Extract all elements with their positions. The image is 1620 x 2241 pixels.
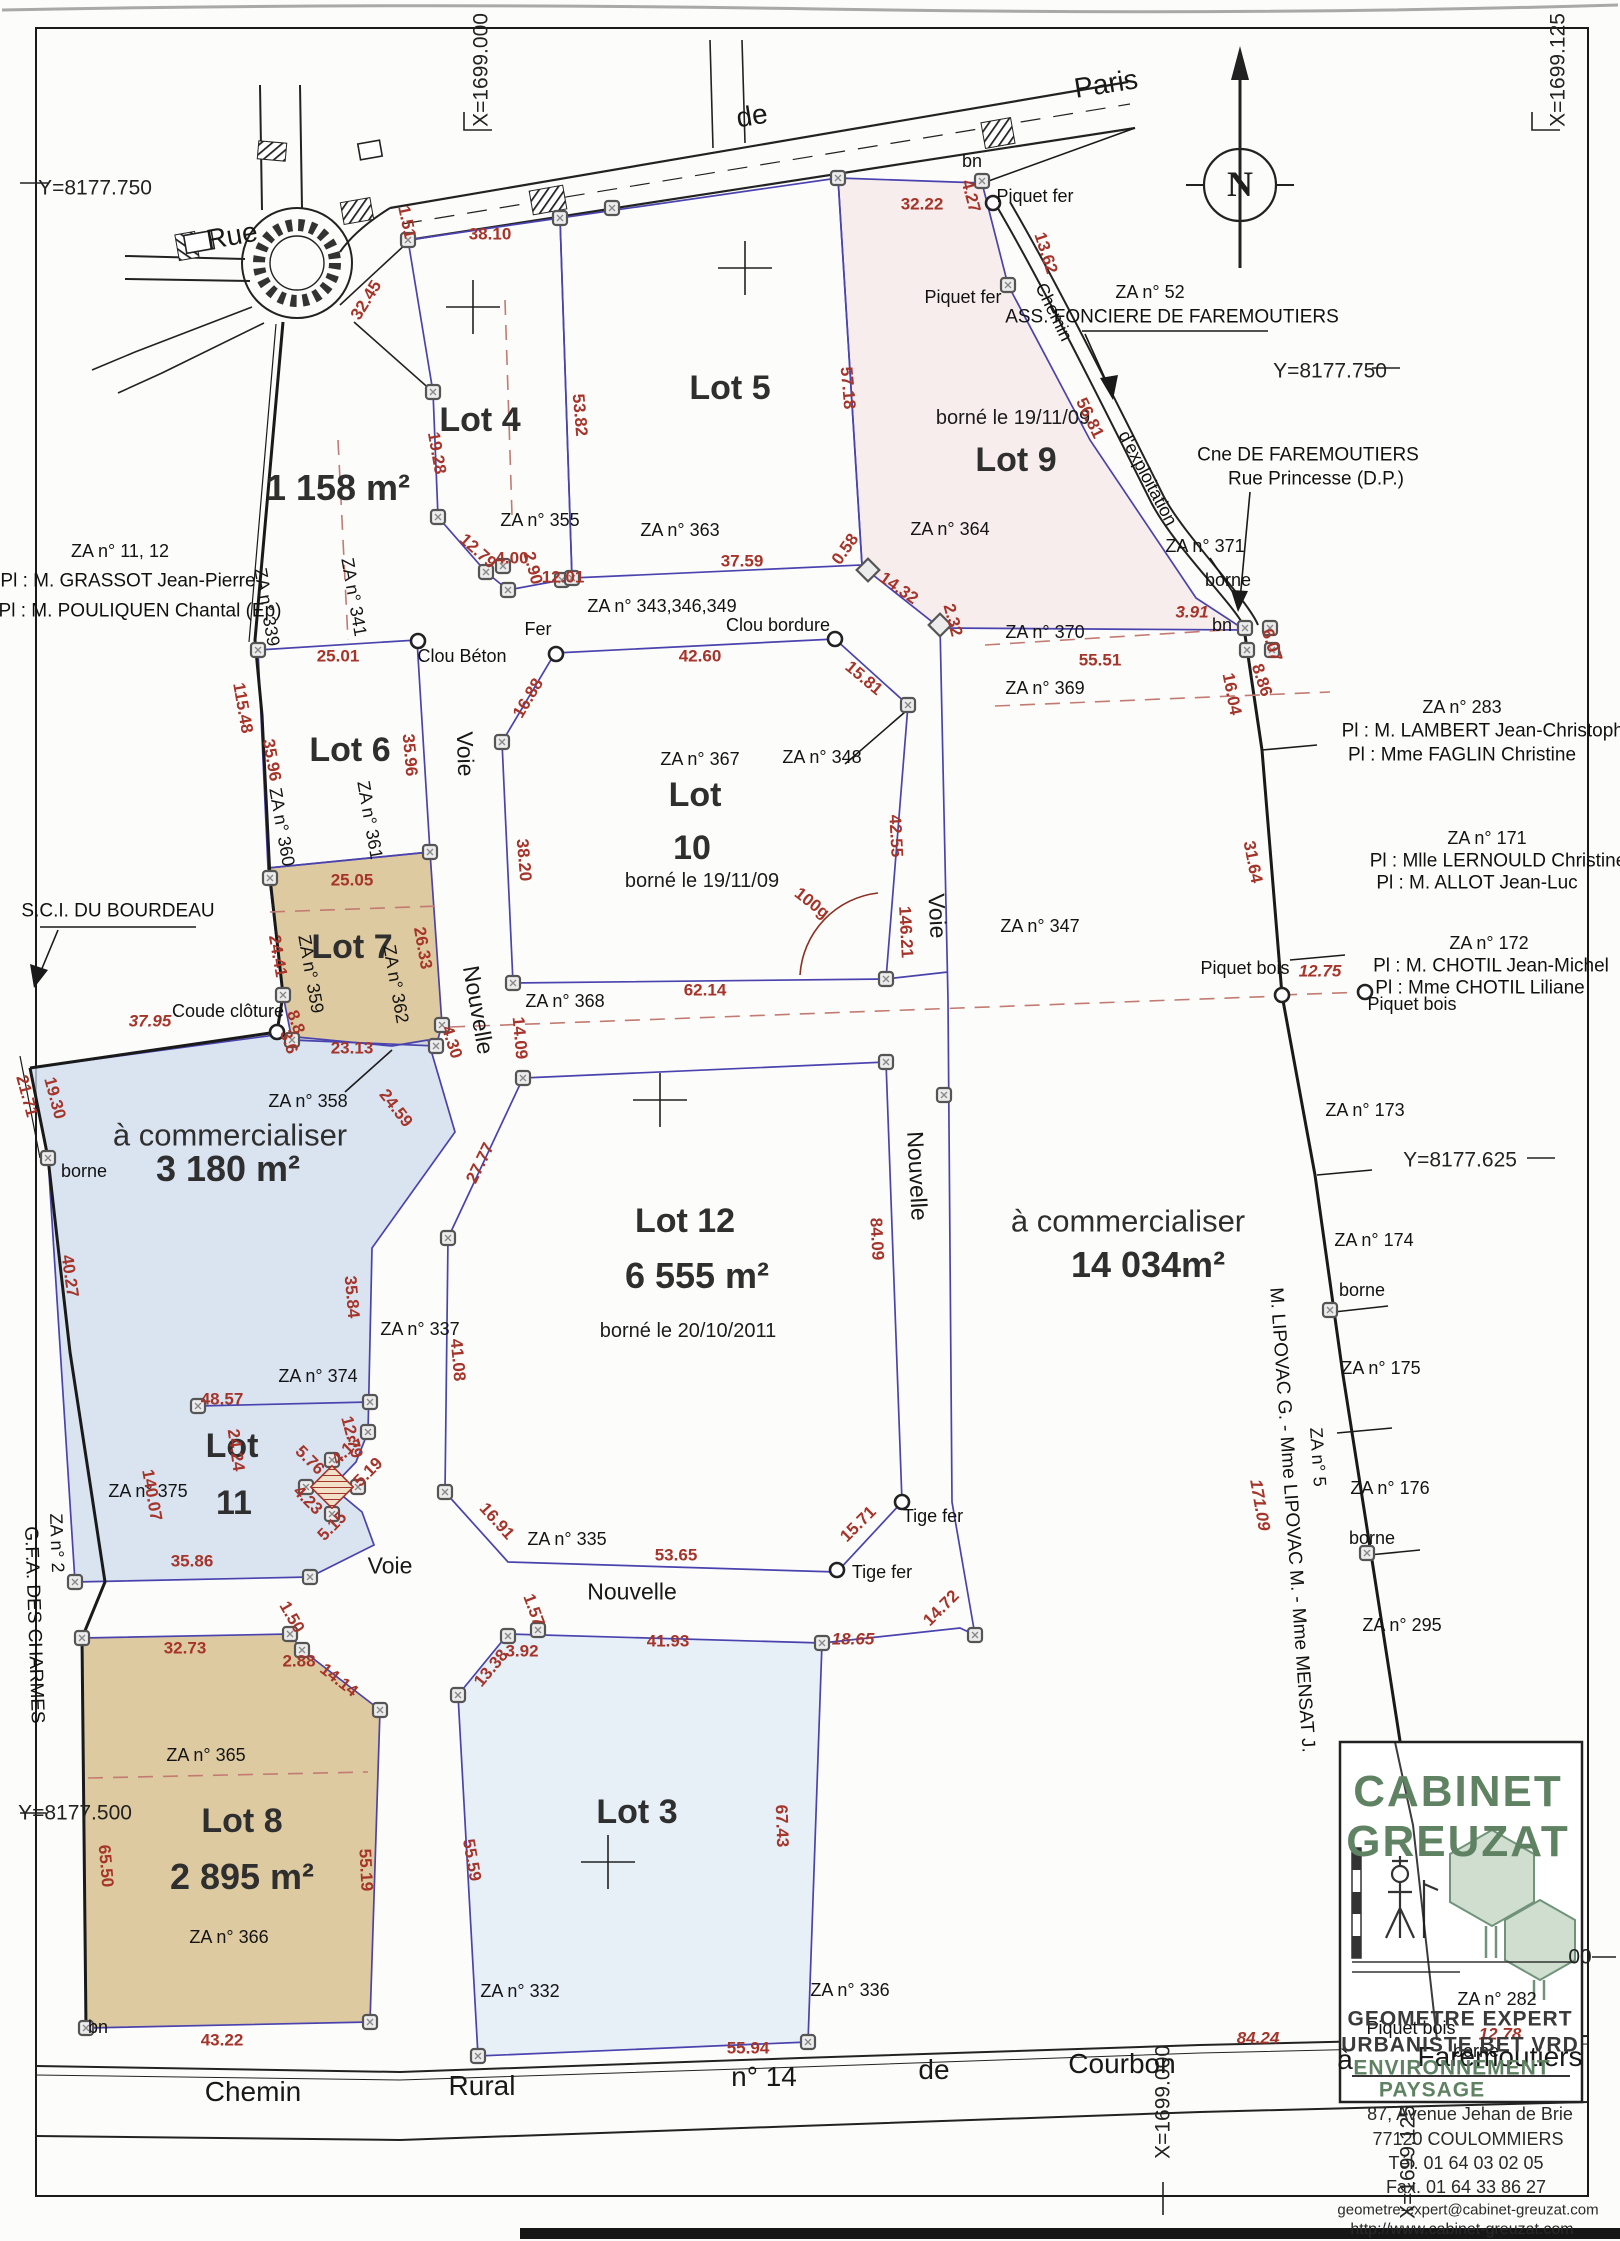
- grid-x-1699-000-top: X=1699.000: [471, 13, 492, 127]
- grid-y-8177-625-right: Y=8177.625: [1403, 1150, 1517, 1171]
- lot7-label: Lot 7: [311, 930, 392, 964]
- za-173: ZA n° 173: [1325, 1101, 1404, 1119]
- lot12-borne-date: borné le 20/10/2011: [600, 1321, 776, 1341]
- m-37-95: 37.95: [129, 1013, 172, 1030]
- owner-lernould: Pl : Mlle LERNOULD Christine: [1370, 852, 1620, 871]
- m-53-82: 53.82: [570, 393, 591, 437]
- za-366: ZA n° 366: [189, 1928, 268, 1946]
- m-57-18: 57.18: [838, 366, 859, 410]
- logo-addr-1: 87, Avenue Jehan de Brie: [1367, 2105, 1573, 2123]
- za-11-12: ZA n° 11, 12: [71, 542, 169, 560]
- m-14-09: 14.09: [510, 1016, 531, 1060]
- owner-sci-bourdeau: S.C.I. DU BOURDEAU: [21, 902, 214, 921]
- za-347: ZA n° 347: [1000, 917, 1079, 935]
- feat-piquet-bois-1: Piquet bois: [1200, 959, 1289, 977]
- m-38-20: 38.20: [514, 838, 535, 882]
- m-35-96-a: 35.96: [260, 738, 284, 783]
- owner-faglin: Pl : Mme FAGLIN Christine: [1348, 746, 1576, 765]
- grid-y-8177-750-left: Y=8177.750: [38, 178, 152, 199]
- za-367: ZA n° 367: [660, 750, 739, 768]
- m-48-57: 48.57: [201, 1391, 244, 1408]
- label-layer: Y=8177.750X=1699.000X=1699.125Y=8177.750…: [0, 0, 1620, 2241]
- feat-clou-beton: Clou Béton: [417, 647, 506, 665]
- chemin-exploitation-1: Chemin: [1032, 280, 1075, 344]
- street-name-paris: Paris: [1072, 65, 1139, 103]
- m-171-09: 171.09: [1247, 1478, 1273, 1532]
- logo-title-2: GREUZAT: [1346, 1820, 1569, 1864]
- voie-nouvelle-east-1: Voie: [924, 893, 949, 939]
- commercial-west-title: à commercialiser: [113, 1120, 347, 1151]
- za-361: ZA n° 361: [354, 779, 385, 860]
- m-84-09: 84.09: [867, 1217, 886, 1260]
- m-13-38: 13.38: [471, 1646, 511, 1690]
- m-53-65: 53.65: [655, 1547, 698, 1564]
- lot11-label-2: 11: [216, 1486, 252, 1520]
- logo-line-4: PAYSAGE: [1379, 2080, 1485, 2101]
- za-362: ZA n° 362: [380, 943, 411, 1024]
- chemin-rural-7: Faremoutiers: [1418, 2043, 1583, 2071]
- m-12-75: 12.75: [1299, 963, 1342, 980]
- owner-pouliquen: Pl : M. POULIQUEN Chantal (Ep): [0, 602, 281, 621]
- m-14-14: 14.14: [317, 1660, 361, 1700]
- m-38-10: 38.10: [469, 226, 512, 243]
- feat-bn-lot8: bn: [88, 2018, 108, 2036]
- lot6-label: Lot 6: [309, 733, 390, 767]
- m-1-50: 1.50: [276, 1598, 307, 1635]
- za-348: ZA n° 348: [782, 748, 861, 766]
- m-43-22: 43.22: [201, 2032, 244, 2049]
- m-24-24: 24.24: [225, 1428, 248, 1472]
- m-140-07: 140.07: [139, 1468, 165, 1522]
- feat-clou-bordure: Clou bordure: [726, 616, 830, 634]
- street-name-de: de: [734, 100, 769, 133]
- logo-line-1: GEOMETRE EXPERT: [1347, 2009, 1572, 2030]
- logo-addr-3: Tél. 01 64 03 02 05: [1388, 2154, 1543, 2172]
- commercial-west-area: 3 180 m²: [156, 1151, 300, 1187]
- m-84-24: 84.24: [1237, 2030, 1280, 2047]
- cadastral-plan-page: Y=8177.750X=1699.000X=1699.125Y=8177.750…: [0, 0, 1620, 2241]
- m-19-28: 19.28: [425, 431, 449, 476]
- m-55-51: 55.51: [1079, 652, 1122, 669]
- za-370: ZA n° 370: [1005, 623, 1084, 641]
- m-3-92: 3.92: [505, 1643, 538, 1660]
- m-14-32: 14.32: [877, 569, 922, 607]
- m-8-8: 8.8: [284, 1008, 308, 1036]
- lot9-borne-date: borné le 19/11/09: [936, 408, 1090, 428]
- feat-tige-fer-2: Tige fer: [852, 1563, 912, 1581]
- m-26-33: 26.33: [411, 926, 435, 971]
- m-5-15: 5.15: [314, 1508, 349, 1543]
- m-55-59: 55.59: [460, 1838, 484, 1883]
- m-6-07: 6.07: [1259, 627, 1285, 664]
- m-146-21: 146.21: [896, 906, 916, 959]
- grid-x-1699-125-top: X=1699.125: [1548, 13, 1569, 127]
- lot5-label: Lot 5: [689, 371, 770, 405]
- za-336: ZA n° 336: [810, 1981, 889, 1999]
- za-52: ZA n° 52: [1115, 283, 1184, 301]
- za-365: ZA n° 365: [166, 1746, 245, 1764]
- m-23-13: 23.13: [331, 1040, 374, 1057]
- za-341: ZA n° 341: [338, 556, 369, 637]
- m-56-81: 56.81: [1073, 395, 1107, 441]
- za-174: ZA n° 174: [1334, 1231, 1413, 1249]
- lot4-label: Lot 4: [439, 403, 520, 437]
- commercial-east-area: 14 034m²: [1071, 1247, 1225, 1283]
- north-letter: N: [1227, 166, 1253, 202]
- m-3-6: 3.6: [277, 1028, 301, 1056]
- voie-nouvelle-west-2: Nouvelle: [459, 964, 497, 1056]
- logo-addr-2: 77120 COULOMMIERS: [1372, 2130, 1563, 2148]
- strip-area-1158: 1 158 m²: [266, 470, 410, 506]
- za-363: ZA n° 363: [640, 521, 719, 539]
- m-16-91: 16.91: [476, 1500, 517, 1543]
- m-12-78: 12.78: [1479, 2026, 1522, 2043]
- grid-x-1699-000-bottom: X=1699.000: [1153, 2045, 1174, 2159]
- owner-allot: Pl : M. ALLOT Jean-Luc: [1376, 874, 1577, 893]
- m-13-62: 13.62: [1031, 230, 1060, 276]
- za-360: ZA n° 360: [266, 786, 297, 867]
- m-12-79-lot11: 12.79: [338, 1414, 365, 1459]
- za-359: ZA n° 359: [295, 933, 326, 1014]
- za-358: ZA n° 358: [268, 1092, 347, 1110]
- m-32-73: 32.73: [164, 1640, 207, 1657]
- m-41-93: 41.93: [647, 1633, 690, 1650]
- m-24-41: 24.41: [266, 934, 290, 979]
- za-335: ZA n° 335: [527, 1530, 606, 1548]
- feat-piquet-bois-3: Piquet bois: [1366, 2019, 1455, 2037]
- grid-y-8177-500-right-partial: 00: [1568, 1947, 1591, 1968]
- m-1-51: 1.51: [395, 204, 419, 240]
- owner-lambert: Pl : M. LAMBERT Jean-Christophe: [1342, 722, 1620, 741]
- m-25-05: 25.05: [331, 872, 374, 889]
- chemin-rural-4: de: [918, 2056, 949, 2084]
- m-5-76: 5.76: [292, 1442, 327, 1477]
- m-8-86: 8.86: [1249, 662, 1275, 699]
- m-37-59: 37.59: [721, 553, 764, 570]
- logo-title-1: CABINET: [1353, 1770, 1563, 1814]
- za-5: ZA n° 5: [1307, 1427, 1329, 1487]
- m-35-84: 35.84: [342, 1275, 363, 1319]
- feat-piquet-bois-2: Piquet bois: [1367, 995, 1456, 1013]
- m-31-64: 31.64: [1241, 839, 1266, 884]
- m-32-22: 32.22: [901, 196, 944, 213]
- za-282: ZA n° 282: [1457, 1990, 1536, 2008]
- za-172: ZA n° 172: [1449, 934, 1528, 952]
- borne-right-1: borne: [1339, 1281, 1385, 1299]
- m-35-96-b: 35.96: [400, 733, 421, 777]
- logo-line-3: ENVIRONNEMENT: [1353, 2058, 1550, 2079]
- za-339: ZA n° 339: [251, 566, 282, 647]
- m-62-14: 62.14: [684, 982, 727, 999]
- m-4-00: 4.00: [495, 550, 528, 567]
- feat-borne-west: borne: [61, 1162, 107, 1180]
- m-14-72: 14.72: [920, 1587, 962, 1629]
- m-27-77: 27.77: [463, 1140, 497, 1186]
- m-4-30: 4.30: [439, 1024, 465, 1061]
- m-16-04: 16.04: [1220, 671, 1245, 716]
- m-42-60: 42.60: [679, 648, 722, 665]
- m-19-30: 19.30: [41, 1075, 68, 1120]
- m-3-91: 3.91: [1175, 604, 1208, 621]
- m-35-86: 35.86: [171, 1553, 214, 1570]
- m-32-45: 32.45: [348, 277, 385, 322]
- m-41-08: 41.08: [448, 1338, 469, 1382]
- lot12-area: 6 555 m²: [625, 1258, 769, 1294]
- za-364: ZA n° 364: [910, 520, 989, 538]
- lot3-label: Lot 3: [596, 1795, 677, 1829]
- za-374: ZA n° 374: [278, 1367, 357, 1385]
- za-175: ZA n° 175: [1341, 1359, 1420, 1377]
- m-21-71: 21.71: [13, 1073, 40, 1118]
- m-18-65: 18.65: [832, 1631, 875, 1648]
- za-2: ZA n° 2: [47, 1513, 67, 1573]
- grid-x-1699-125-bottom: X=1699.125: [1398, 2105, 1419, 2219]
- lot10-borne-date: borné le 19/11/09: [625, 871, 779, 891]
- za-371: ZA n° 371: [1165, 537, 1244, 555]
- owner-chotil-l: Pl : Mme CHOTIL Liliane: [1375, 979, 1584, 998]
- chemin-rural-3: n° 14: [731, 2063, 797, 2091]
- lot10-label-2: 10: [673, 831, 711, 865]
- logo-url: http://www.cabinet-greuzat.com: [1350, 2222, 1573, 2238]
- feat-borne-logo: borne: [1453, 2042, 1499, 2060]
- feat-coude-cloture: Coude clôture: [172, 1002, 284, 1020]
- m-2-88: 2.88: [282, 1653, 315, 1670]
- borne-right-2: borne: [1349, 1529, 1395, 1547]
- chemin-rural-2: Rural: [449, 2072, 516, 2100]
- feat-fer: Fer: [525, 620, 552, 638]
- m-4-13: 4.13: [328, 1432, 363, 1467]
- za-171: ZA n° 171: [1447, 829, 1526, 847]
- m-4-23: 4.23: [290, 1482, 325, 1517]
- bn-cluster-label: bn: [1212, 616, 1232, 634]
- m-55-94: 55.94: [727, 2040, 770, 2057]
- commercial-east-title: à commercialiser: [1011, 1206, 1245, 1237]
- owner-cne-faremoutiers: Cne DE FAREMOUTIERS: [1197, 446, 1419, 465]
- voie-nouvelle-south-2: Nouvelle: [587, 1581, 677, 1604]
- lot11-label-1: Lot: [206, 1429, 259, 1463]
- m-42-55: 42.55: [886, 814, 905, 857]
- lot12-label: Lot 12: [635, 1204, 735, 1238]
- m-1-57: 1.57: [520, 1592, 547, 1629]
- m-5-19: 5.19: [350, 1454, 385, 1489]
- m-115-48: 115.48: [230, 681, 256, 734]
- voie-nouvelle-east-2: Nouvelle: [903, 1131, 931, 1222]
- owner-lipovac: M. LIPOVAC G. - Mme LIPOVAC M. - Mme MEN…: [1266, 1287, 1317, 1753]
- voie-nouvelle-south-1: Voie: [368, 1555, 413, 1578]
- m-0-58: 0.58: [829, 531, 862, 568]
- m-16-88: 16.88: [510, 675, 546, 720]
- owner-grassot: Pl : M. GRASSOT Jean-Pierre: [0, 572, 255, 591]
- owner-chotil-jm: Pl : M. CHOTIL Jean-Michel: [1373, 957, 1609, 976]
- borne-cluster-label: borne: [1205, 571, 1251, 589]
- lot8-label: Lot 8: [201, 1804, 282, 1838]
- m-2-32: 2.32: [941, 602, 966, 638]
- m-67-43: 67.43: [773, 1804, 791, 1847]
- grid-y-8177-500-left: Y=8177.500: [18, 1803, 132, 1824]
- m-15-71: 15.71: [837, 1503, 879, 1545]
- owner-gfa-charmes: G.F.A. DES CHARMES: [21, 1526, 47, 1724]
- owner-rue-princesse: Rue Princesse (D.P.): [1228, 470, 1404, 489]
- za-337: ZA n° 337: [380, 1320, 459, 1338]
- logo-line-2: URBANISTE BET VRD: [1341, 2035, 1579, 2056]
- lot8-area: 2 895 m²: [170, 1859, 314, 1895]
- chemin-exploitation-2: d'exploitation: [1116, 428, 1181, 529]
- chemin-rural-6: à: [1337, 2046, 1353, 2074]
- za-355: ZA n° 355: [500, 511, 579, 529]
- feat-tige-fer-1: Tige fer: [903, 1507, 963, 1525]
- m-24-59: 24.59: [376, 1086, 416, 1130]
- za-375: ZA n° 375: [108, 1482, 187, 1500]
- lot10-label-1: Lot: [669, 778, 722, 812]
- za-368: ZA n° 368: [525, 992, 604, 1010]
- m-2-90: 2.90: [521, 550, 546, 586]
- za-332: ZA n° 332: [480, 1982, 559, 2000]
- feat-bn-road: bn: [962, 152, 982, 170]
- za-295: ZA n° 295: [1362, 1616, 1441, 1634]
- voie-nouvelle-west-1: Voie: [453, 731, 478, 777]
- street-name-rue: Rue: [204, 218, 259, 254]
- m-40-27: 40.27: [59, 1254, 82, 1298]
- grid-y-8177-750-right: Y=8177.750: [1273, 361, 1387, 382]
- za-343-346-349: ZA n° 343,346,349: [587, 597, 736, 615]
- lot9-label: Lot 9: [975, 443, 1056, 477]
- m-12-01: 12.01: [542, 569, 585, 586]
- logo-addr-4: Fax. 01 64 33 86 27: [1386, 2178, 1546, 2196]
- owner-ass-fonciere: ASS. FONCIERE DE FAREMOUTIERS: [1005, 308, 1339, 327]
- m-100g: 100g: [791, 884, 832, 921]
- chemin-rural-5: Courbon: [1068, 2050, 1175, 2078]
- logo-email: geometre-expert@cabinet-greuzat.com: [1337, 2203, 1598, 2218]
- m-15-81: 15.81: [842, 658, 886, 698]
- feat-piquet-fer-1: Piquet fer: [996, 187, 1073, 205]
- m-65-50: 65.50: [96, 1844, 117, 1888]
- m-25-01: 25.01: [317, 648, 360, 665]
- feat-piquet-fer-2: Piquet fer: [924, 288, 1001, 306]
- za-369: ZA n° 369: [1005, 679, 1084, 697]
- za-176: ZA n° 176: [1350, 1479, 1429, 1497]
- za-283: ZA n° 283: [1422, 698, 1501, 716]
- m-12-79-top: 12.79: [457, 530, 500, 571]
- chemin-rural-1: Chemin: [205, 2078, 301, 2106]
- m-4-27: 4.27: [959, 178, 984, 214]
- m-55-19: 55.19: [356, 1848, 375, 1891]
